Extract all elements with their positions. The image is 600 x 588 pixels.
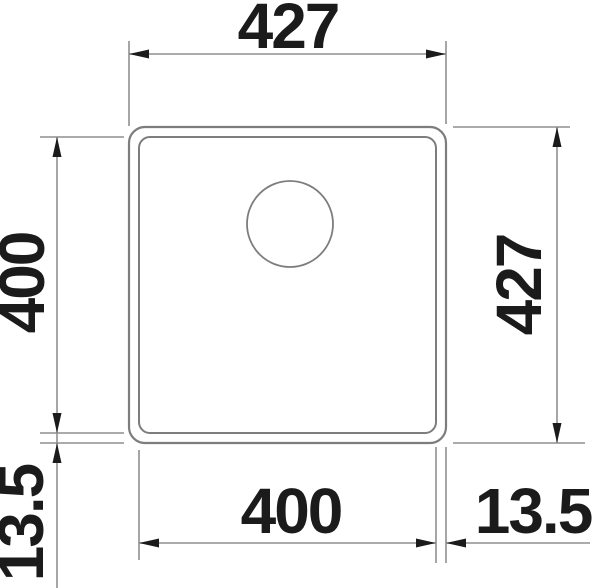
sink-outline: [129, 127, 446, 443]
arrow-left-up: [53, 137, 62, 157]
arrow-left-rim-up: [53, 443, 62, 463]
dimension-drawing: 427 427 400 13.5 400 13.5: [0, 0, 600, 588]
arrow-top-right: [426, 50, 446, 59]
sink-dimension-diagram: 427 427 400 13.5 400 13.5: [0, 0, 600, 588]
bowl-depth-label: 400: [0, 233, 58, 334]
arrow-right-down: [553, 423, 562, 443]
dimension-labels: 427 427 400 13.5 400 13.5: [0, 0, 592, 581]
arrow-right-up: [553, 127, 562, 147]
arrow-top-left: [129, 50, 149, 59]
arrow-bottom-rim-left: [446, 539, 466, 548]
arrow-bottom-right: [416, 539, 436, 548]
arrow-bottom-left: [139, 539, 159, 548]
rim-bottom-right-label: 13.5: [475, 475, 592, 547]
drain-hole: [247, 181, 333, 267]
bowl-width-label: 400: [241, 475, 342, 547]
outer-depth-label: 427: [483, 235, 555, 336]
arrow-left-down: [53, 413, 62, 433]
sink-outer-edge: [129, 127, 446, 443]
rim-bottom-left-label: 13.5: [0, 464, 57, 581]
outer-width-label: 427: [238, 0, 339, 62]
